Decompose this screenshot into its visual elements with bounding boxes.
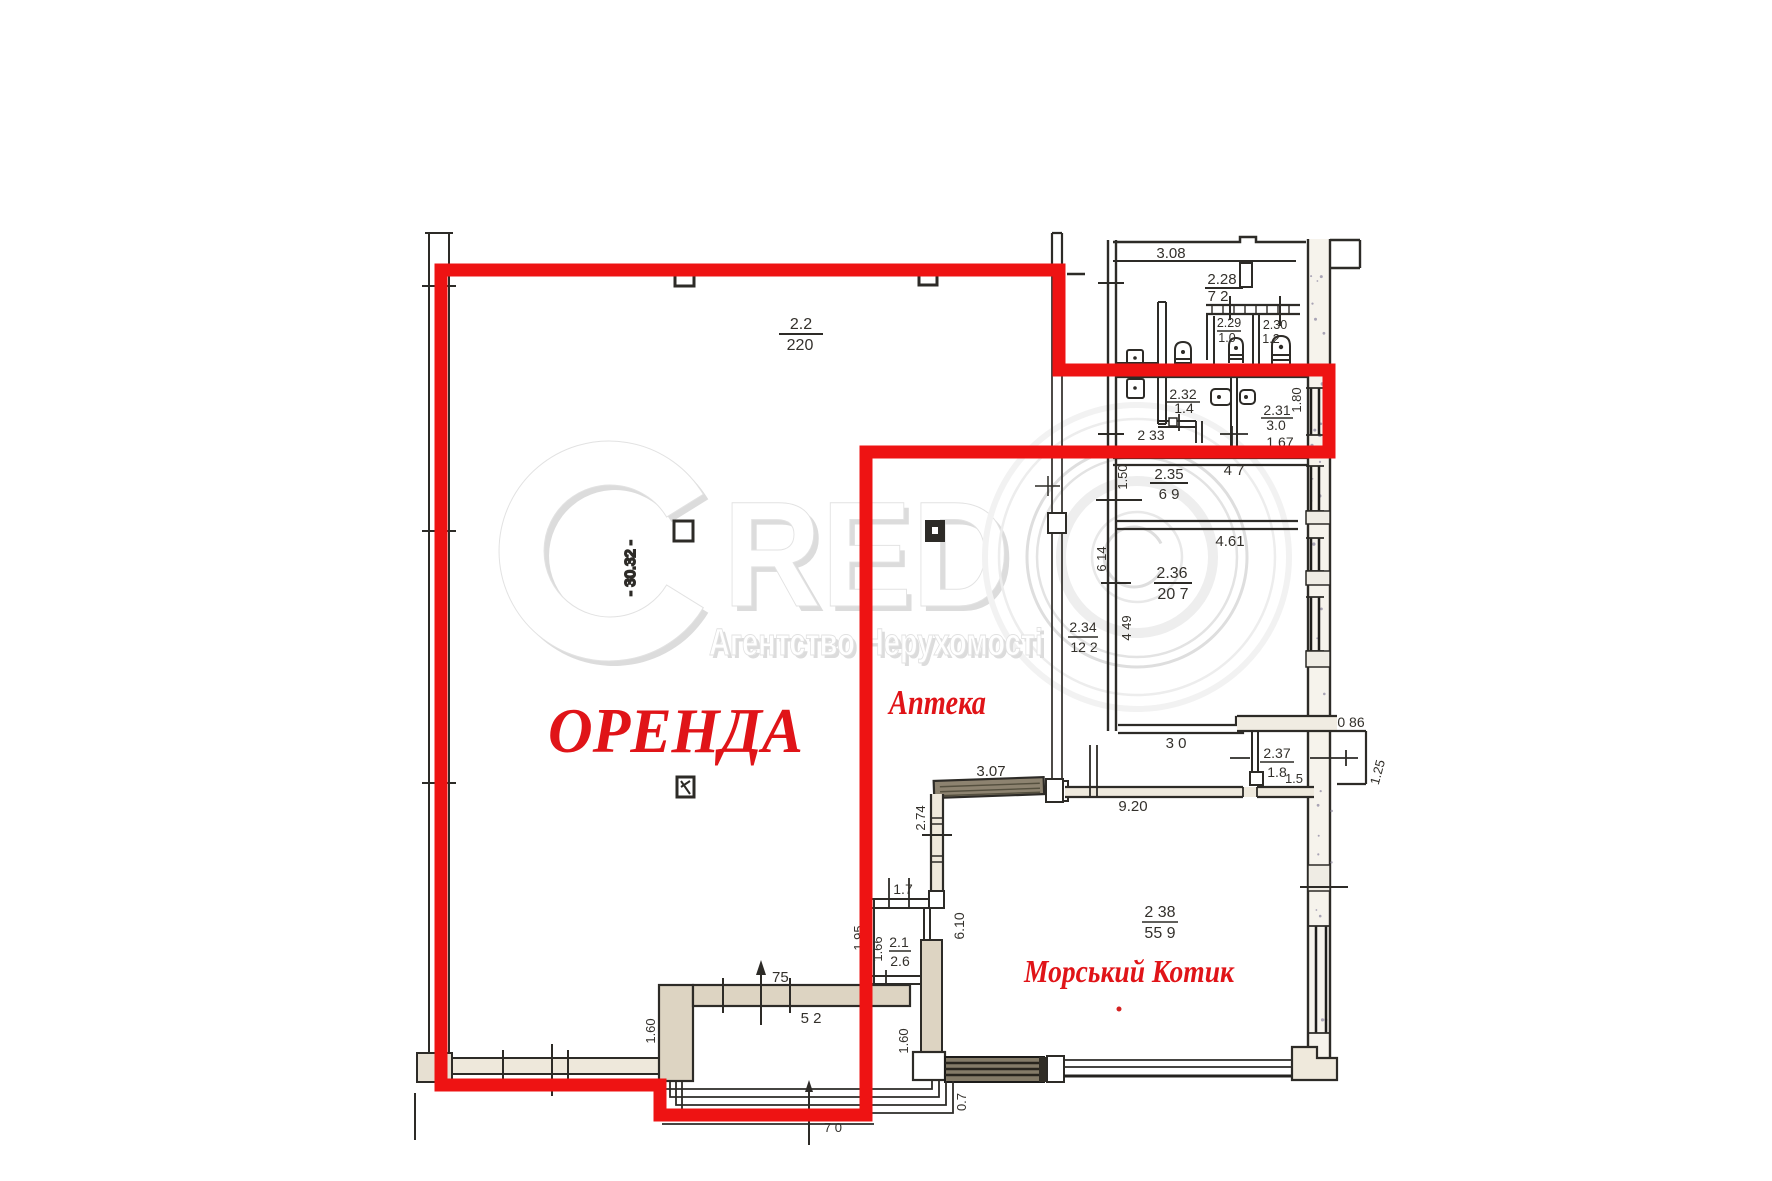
svg-text:3 0: 3 0: [1166, 735, 1187, 752]
svg-text:7 0: 7 0: [824, 1120, 842, 1135]
svg-text:1.7: 1.7: [893, 881, 913, 897]
svg-text:1.80: 1.80: [1289, 387, 1304, 412]
svg-text:Агентство Нерухомості: Агентство Нерухомості: [709, 622, 1043, 664]
svg-text:20 7: 20 7: [1157, 586, 1188, 603]
svg-text:9.20: 9.20: [1118, 798, 1147, 815]
svg-text:1.60: 1.60: [896, 1028, 911, 1053]
svg-text:3.07: 3.07: [976, 763, 1005, 780]
svg-text:2.74: 2.74: [913, 805, 928, 830]
svg-text:2 33: 2 33: [1137, 427, 1164, 443]
svg-text:220: 220: [787, 337, 814, 354]
svg-text:4 7: 4 7: [1224, 462, 1245, 479]
svg-text:55 9: 55 9: [1144, 925, 1175, 942]
svg-text:7 2: 7 2: [1208, 288, 1229, 305]
svg-text:2.6: 2.6: [890, 953, 910, 969]
svg-text:3.0: 3.0: [1266, 417, 1286, 433]
svg-text:6 9: 6 9: [1159, 486, 1180, 503]
svg-text:2.28: 2.28: [1207, 271, 1236, 288]
svg-text:0.7: 0.7: [954, 1093, 969, 1111]
svg-text:6 14: 6 14: [1094, 546, 1109, 571]
svg-text:2 38: 2 38: [1144, 904, 1175, 921]
svg-text:1.60: 1.60: [643, 1018, 658, 1043]
svg-text:0 86: 0 86: [1337, 714, 1364, 730]
svg-text:2.29: 2.29: [1217, 316, 1241, 330]
svg-text:2.2: 2.2: [790, 316, 812, 333]
svg-text:2.1: 2.1: [889, 934, 909, 950]
svg-text:5 2: 5 2: [801, 1010, 822, 1027]
svg-text:1.5: 1.5: [1285, 771, 1303, 786]
svg-text:2.37: 2.37: [1263, 745, 1290, 761]
svg-text:- 30.32 -: - 30.32 -: [622, 540, 639, 596]
svg-text:12 2: 12 2: [1070, 639, 1097, 655]
svg-text:2.35: 2.35: [1154, 466, 1183, 483]
svg-text:2.30: 2.30: [1263, 318, 1287, 332]
svg-text:2.34: 2.34: [1069, 619, 1096, 635]
svg-text:Морський Котик: Морський Котик: [1023, 953, 1235, 989]
svg-text:2.36: 2.36: [1156, 565, 1187, 582]
svg-text:75: 75: [772, 969, 789, 986]
svg-text:4 49: 4 49: [1119, 615, 1134, 640]
svg-text:6.10: 6.10: [951, 912, 967, 939]
svg-text:Аптека: Аптека: [887, 683, 986, 722]
svg-text:2.31: 2.31: [1263, 402, 1290, 418]
svg-text:ОРЕНДА: ОРЕНДА: [548, 696, 803, 766]
svg-text:4.61: 4.61: [1215, 533, 1244, 550]
svg-text:3.08: 3.08: [1156, 245, 1185, 262]
svg-text:1.2: 1.2: [1262, 332, 1279, 346]
svg-text:1.50: 1.50: [1115, 464, 1130, 489]
